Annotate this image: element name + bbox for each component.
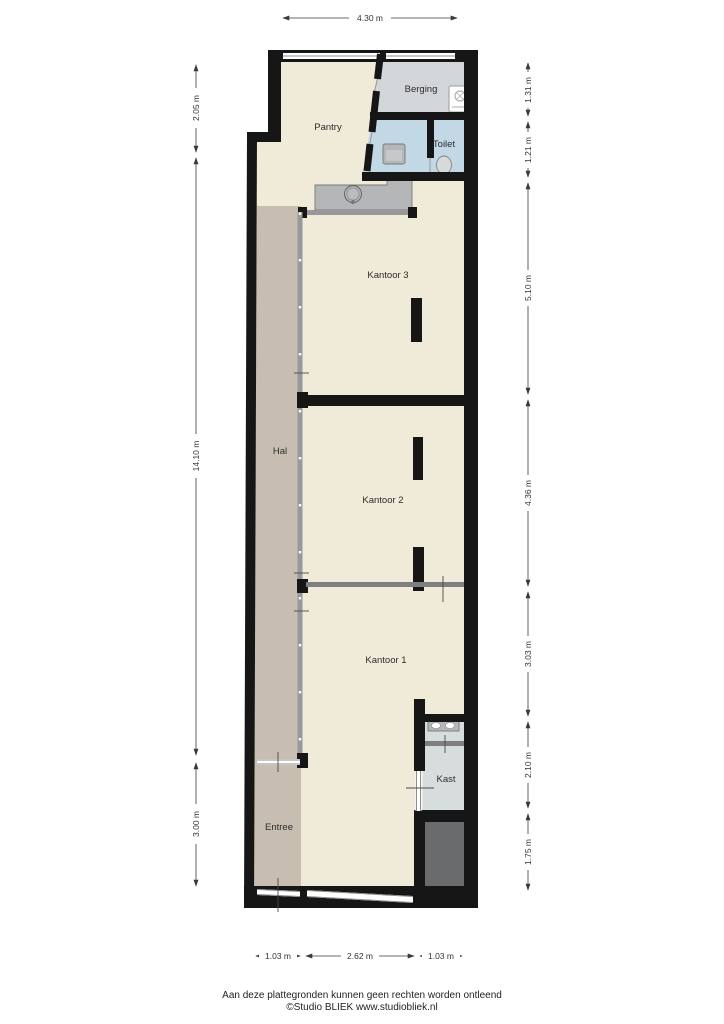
double-basin-icon: [428, 721, 459, 731]
dim-label: 2.05 m: [191, 95, 201, 121]
toilet-bowl-icon: [437, 156, 452, 174]
wall-k3-k2: [301, 395, 464, 406]
room-hal-entree-floor: [253, 206, 301, 896]
dim-label: 1.03 m: [428, 951, 454, 961]
wall-void-left: [414, 810, 425, 906]
wall-kast-inner: [425, 741, 464, 746]
void-area: [423, 818, 466, 890]
room-label-berging: Berging: [405, 84, 438, 95]
glass-under-counter: [302, 210, 413, 215]
room-kast-floor: [423, 720, 466, 814]
kitchen-sink-tap: [352, 200, 355, 204]
room-label-kantoor1: Kantoor 1: [365, 655, 406, 666]
dim-label: 14.10 m: [191, 441, 201, 472]
column-kantoor2-upper: [413, 437, 423, 480]
wall-kast-top: [423, 714, 464, 722]
dim-label: 1.03 m: [265, 951, 291, 961]
room-label-kast: Kast: [436, 774, 455, 785]
wall-left-upper: [268, 50, 281, 142]
footer-credit: ©Studio BLIEK www.studiobliek.nl: [0, 1002, 724, 1014]
wall-toilet-bottom: [362, 172, 468, 181]
room-label-pantry: Pantry: [314, 122, 342, 133]
dim-label: 1.75 m: [523, 839, 533, 865]
room-label-hal: Hal: [273, 446, 287, 457]
dim-label: 4.30 m: [357, 13, 383, 23]
dim-label: 5.10 m: [523, 275, 533, 301]
room-label-toilet: Toilet: [433, 139, 456, 150]
dim-label: 3.03 m: [523, 641, 533, 667]
dim-label: 2.10 m: [523, 752, 533, 778]
wall-k2-k1: [306, 582, 464, 587]
column-kantoor3: [411, 298, 422, 342]
bathroom-sink-icon: [383, 144, 405, 164]
floorplan-page: 4.30 m 2.05 m 14.10 m 3.00 m 1.31 m 1.21…: [0, 0, 724, 1024]
footer-disclaimer: Aan deze plattegronden kunnen geen recht…: [0, 990, 724, 1002]
wall-berging-bottom: [370, 112, 468, 120]
dim-label: 1.21 m: [523, 137, 533, 163]
floor-plan-svg: 4.30 m 2.05 m 14.10 m 3.00 m 1.31 m 1.21…: [0, 0, 724, 1024]
wall-kast-vertical: [414, 699, 425, 771]
room-label-entree: Entree: [265, 822, 293, 833]
wall-toilet-divider: [427, 112, 434, 158]
dim-label: 1.31 m: [523, 77, 533, 103]
glass-junction-block: [297, 392, 308, 408]
dim-label: 3.00 m: [191, 811, 201, 837]
glass-cap: [408, 207, 417, 218]
glass-hal-partition: [298, 212, 303, 763]
dim-label: 4.36 m: [523, 480, 533, 506]
kitchen-sink-bowl: [347, 188, 359, 200]
room-label-kantoor2: Kantoor 2: [362, 495, 403, 506]
dim-label: 2.62 m: [347, 951, 373, 961]
floors: [250, 55, 468, 898]
footer: Aan deze plattegronden kunnen geen recht…: [0, 990, 724, 1014]
glass-kast-left: [416, 771, 422, 811]
room-label-kantoor3: Kantoor 3: [367, 270, 408, 281]
